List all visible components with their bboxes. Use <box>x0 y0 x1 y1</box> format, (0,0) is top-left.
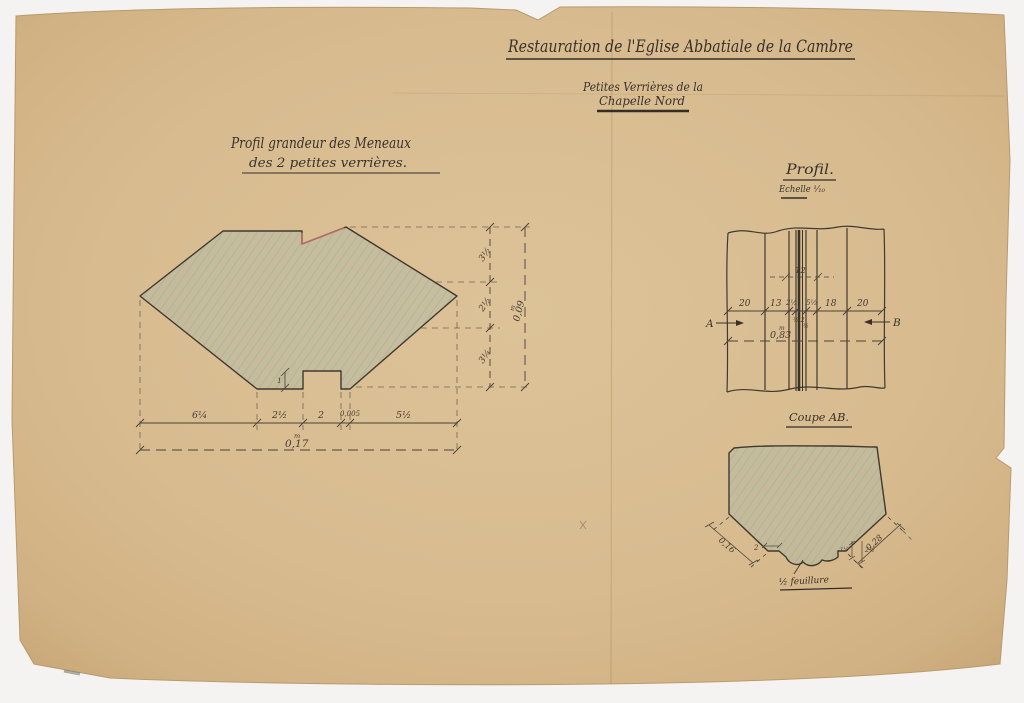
section-caption: Coupe AB. <box>789 410 849 424</box>
drawing-canvas: Restauration de l'Eglise Abbatiale de la… <box>0 0 1024 703</box>
page-subtitle: Petites Verrières de la <box>582 79 703 94</box>
section-marker-a: A <box>705 318 714 330</box>
profile-total-unit: m <box>779 325 785 332</box>
dim-label: 2½ <box>271 410 287 421</box>
bottom-total-unit: m <box>294 432 300 440</box>
dim-label: 0,005 <box>340 410 361 418</box>
dim-label: ½ <box>803 323 809 330</box>
notch-dimension-label: 1 <box>277 376 282 385</box>
left-caption-line2: des 2 petites verrières. <box>249 156 407 171</box>
dim-label: 13 <box>770 299 782 309</box>
dim-label: 12 <box>795 266 806 276</box>
left-caption-line1: Profil grandeur des Meneaux <box>230 136 411 152</box>
dim-label: 5½ <box>806 299 817 307</box>
dim-label: 1¼ <box>840 546 849 553</box>
dim-label: 18 <box>825 299 837 309</box>
section-marker-b: B <box>892 317 901 329</box>
paper-sheet <box>12 7 1011 685</box>
dim-label: 2 <box>317 410 324 421</box>
dim-label: 2½ <box>864 547 875 554</box>
page-title: Restauration de l'Eglise Abbatiale de la… <box>507 37 853 57</box>
dim-label: 20 <box>738 299 751 309</box>
dim-label: 5½ <box>396 410 411 421</box>
dim-label: 20 <box>856 299 869 309</box>
profile-scale-label: Echelle ¹⁄₁₀ <box>778 185 825 195</box>
page-subtitle-line2: Chapelle Nord <box>599 94 685 108</box>
dim-label: 2 <box>753 544 759 552</box>
dim-label: 6¼ <box>192 410 207 421</box>
dim-label: 2½ <box>785 299 797 307</box>
scanned-drawing-page: Restauration de l'Eglise Abbatiale de la… <box>0 0 1024 703</box>
profile-caption: Profil. <box>785 162 834 178</box>
